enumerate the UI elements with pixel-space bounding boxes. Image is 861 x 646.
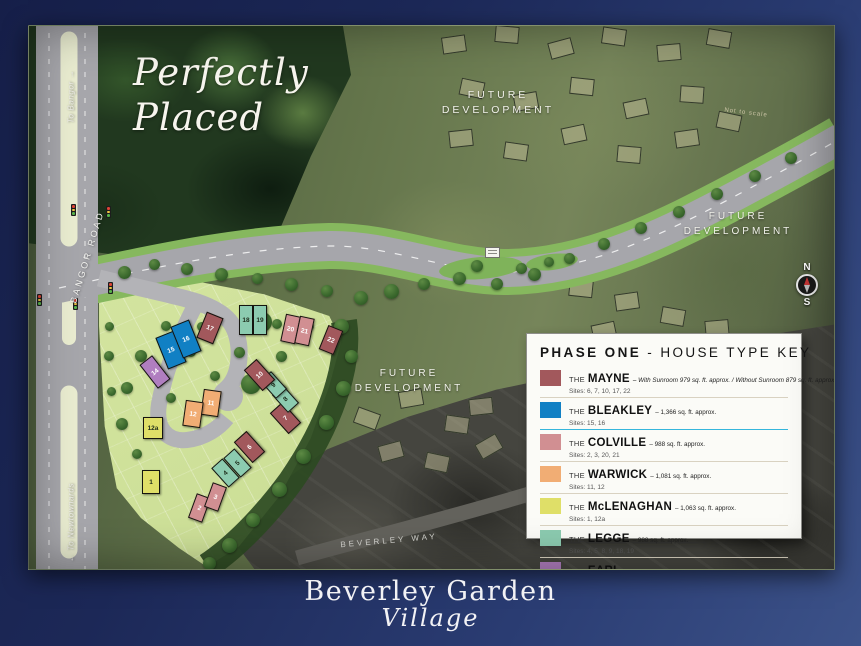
traffic-light-icon: [71, 204, 76, 216]
tree-icon: [252, 273, 263, 284]
site-19: 19: [253, 305, 267, 335]
colville-color-swatch: [540, 434, 561, 450]
legend-row-text: THEMAYNE– With Sunroom 979 sq. ft. appro…: [569, 369, 788, 395]
mclenaghan-color-swatch: [540, 498, 561, 514]
tree-icon: [528, 268, 541, 281]
tree-icon: [471, 260, 483, 272]
site-12: 12: [182, 400, 203, 428]
key-title-phase: PHASE ONE: [540, 345, 641, 360]
earl-color-swatch: [540, 562, 561, 570]
traffic-light-icon: [108, 282, 113, 294]
warwick-color-swatch: [540, 466, 561, 482]
house-type-size: – 1,366 sq. ft. approx.: [655, 409, 716, 416]
legend-row-text: THEBLEAKLEY– 1,366 sq. ft. approx.Sites:…: [569, 401, 788, 427]
house-type-size: – 1,081 sq. ft. approx.: [650, 473, 711, 480]
tagline: Perfectly Placed: [133, 50, 309, 140]
house-type-name: WARWICK: [588, 469, 647, 481]
legend-row-earl: THEEARL– 1,089 sq. ft. approx.Sites: 14: [540, 558, 788, 570]
house-type-sites: Sites: 2, 3, 20, 21: [569, 452, 788, 459]
tree-icon: [384, 284, 399, 299]
compass: N S: [793, 262, 821, 308]
tree-icon: [107, 387, 116, 396]
tree-icon: [215, 268, 228, 281]
tree-icon: [285, 278, 298, 291]
developer-logo: Beverley Garden Village: [0, 576, 861, 632]
legend-rows: THEMAYNE– With Sunroom 979 sq. ft. appro…: [540, 366, 788, 570]
tree-icon: [321, 285, 333, 297]
house-type-name: EARL: [588, 565, 621, 570]
tree-icon: [516, 263, 527, 274]
house-type-sites: Sites: 1, 12a: [569, 516, 788, 523]
future-development-label-central: FUTURE DEVELOPMENT: [334, 367, 484, 396]
tree-icon: [785, 152, 797, 164]
house-type-size: – 1,063 sq. ft. approx.: [675, 505, 736, 512]
house-type-size: – 1,089 sq. ft. approx.: [623, 569, 684, 570]
legend-row-mclenaghan: THEMcLENAGHAN– 1,063 sq. ft. approx.Site…: [540, 494, 788, 526]
road-sign: [485, 247, 500, 258]
tree-icon: [210, 371, 220, 381]
tree-icon: [272, 319, 282, 329]
tree-icon: [453, 272, 466, 285]
to-newtownards-label: ← To Newtownards: [67, 465, 76, 571]
tree-icon: [181, 263, 193, 275]
tree-icon: [203, 557, 216, 570]
site-1: 1: [142, 470, 160, 494]
house-type-sites: Sites: 4, 5, 8, 9, 18, 19: [569, 548, 788, 555]
compass-north-label: N: [793, 262, 821, 273]
site-18: 18: [239, 305, 253, 335]
tree-icon: [345, 350, 358, 363]
future-development-label-north: FUTURE DEVELOPMENT: [423, 88, 573, 118]
legend-row-text: THEEARL– 1,089 sq. ft. approx.Sites: 14: [569, 561, 788, 570]
tree-icon: [635, 222, 647, 234]
tree-icon: [491, 278, 503, 290]
tree-icon: [711, 188, 723, 200]
tree-icon: [272, 482, 287, 497]
site-12a: 12a: [143, 417, 163, 439]
mayne-color-swatch: [540, 370, 561, 386]
house-type-name: McLENAGHAN: [588, 501, 672, 513]
to-bangor-label: To Bangor →: [67, 55, 76, 139]
legend-row-mayne: THEMAYNE– With Sunroom 979 sq. ft. appro…: [540, 366, 788, 398]
tree-icon: [544, 257, 554, 267]
tree-icon: [234, 347, 245, 358]
house-type-size: – 988 sq. ft. approx.: [633, 537, 689, 544]
tagline-line2: Placed: [133, 95, 309, 140]
bleakley-color-swatch: [540, 402, 561, 418]
legend-row-legge: THELEGGE– 988 sq. ft. approx.Sites: 4, 5…: [540, 526, 788, 558]
tree-icon: [246, 513, 260, 527]
tree-icon: [749, 170, 761, 182]
logo-script: Village: [0, 604, 861, 632]
compass-south-label: S: [793, 297, 821, 308]
tagline-line1: Perfectly: [133, 50, 309, 95]
legend-row-text: THECOLVILLE– 988 sq. ft. approx.Sites: 2…: [569, 433, 788, 459]
tree-icon: [276, 351, 287, 362]
house-type-key-title: PHASE ONE - HOUSE TYPE KEY: [540, 345, 788, 360]
tree-icon: [319, 415, 334, 430]
tree-icon: [418, 278, 430, 290]
tree-icon: [132, 449, 142, 459]
legend-row-bleakley: THEBLEAKLEY– 1,366 sq. ft. approx.Sites:…: [540, 398, 788, 430]
tree-icon: [149, 259, 160, 270]
legend-row-colville: THECOLVILLE– 988 sq. ft. approx.Sites: 2…: [540, 430, 788, 462]
legend-row-text: THEMcLENAGHAN– 1,063 sq. ft. approx.Site…: [569, 497, 788, 523]
tree-icon: [598, 238, 610, 250]
house-type-name: BLEAKLEY: [588, 405, 652, 417]
site-plan-map: 12345678910111212a141516171819202122 Per…: [28, 25, 835, 570]
tree-icon: [166, 393, 176, 403]
logo-name: Beverley Garden: [0, 576, 861, 607]
tree-icon: [564, 253, 575, 264]
legend-row-warwick: THEWARWICK– 1,081 sq. ft. approx.Sites: …: [540, 462, 788, 494]
tree-icon: [118, 266, 131, 279]
tree-icon: [296, 449, 311, 464]
house-type-sites: Sites: 15, 16: [569, 420, 788, 427]
traffic-light-icon: [37, 294, 42, 306]
tree-icon: [105, 322, 114, 331]
legend-row-text: THELEGGE– 988 sq. ft. approx.Sites: 4, 5…: [569, 529, 788, 555]
house-type-size: – With Sunroom 979 sq. ft. approx. / Wit…: [633, 377, 835, 384]
key-title-rest: - HOUSE TYPE KEY: [641, 345, 811, 360]
tree-icon: [116, 418, 128, 430]
house-type-name: COLVILLE: [588, 437, 646, 449]
future-development-label-east: FUTURE DEVELOPMENT: [663, 210, 813, 239]
tree-icon: [222, 538, 237, 553]
house-type-sites: Sites: 11, 12: [569, 484, 788, 491]
house-type-size: – 988 sq. ft. approx.: [649, 441, 705, 448]
house-type-name: MAYNE: [588, 373, 630, 385]
house-type-sites: Sites: 6, 7, 10, 17, 22: [569, 388, 788, 395]
house-type-name: LEGGE: [588, 533, 630, 545]
house-type-key: PHASE ONE - HOUSE TYPE KEY THEMAYNE– Wit…: [526, 333, 802, 539]
tree-icon: [121, 382, 133, 394]
legend-row-text: THEWARWICK– 1,081 sq. ft. approx.Sites: …: [569, 465, 788, 491]
compass-rose-icon: [796, 274, 818, 296]
tree-icon: [354, 291, 368, 305]
legge-color-swatch: [540, 530, 561, 546]
tree-icon: [104, 351, 114, 361]
